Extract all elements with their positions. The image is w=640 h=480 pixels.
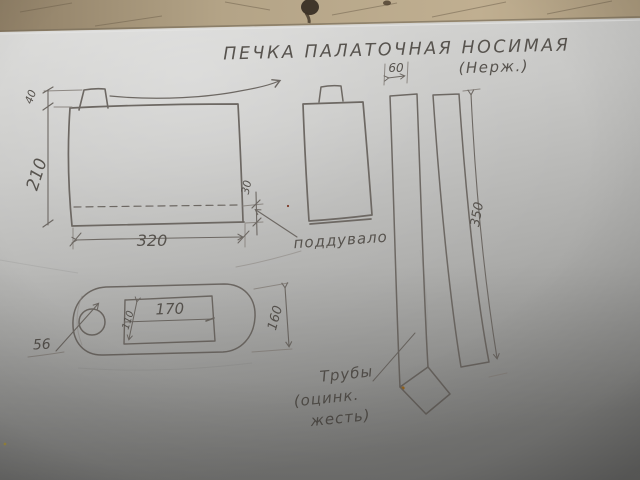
photo-of-pencil-sketch: ПЕЧКА ПАЛАТОЧНАЯ НОСИМАЯ (Нерж.) 40 210 … — [0, 0, 640, 480]
vignette — [0, 0, 640, 480]
sketch-canvas: ПЕЧКА ПАЛАТОЧНАЯ НОСИМАЯ (Нерж.) 40 210 … — [0, 0, 640, 480]
